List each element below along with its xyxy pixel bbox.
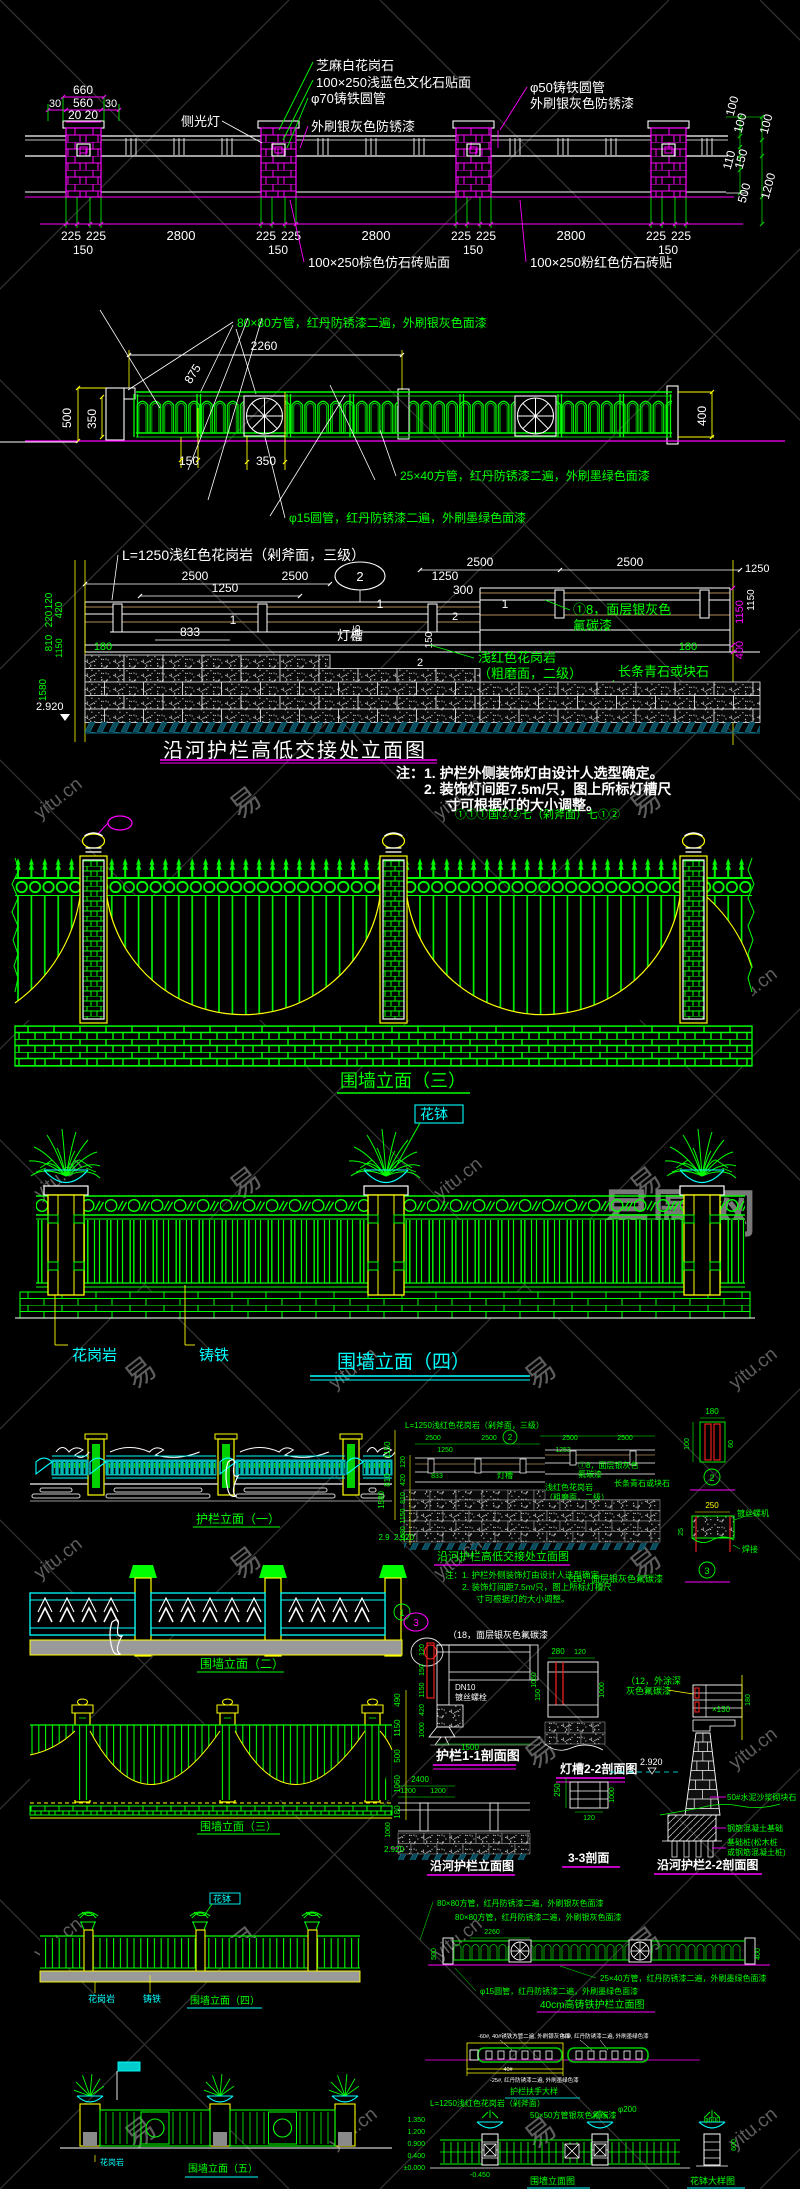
svg-text:围墙立面（三）: 围墙立面（三）: [340, 1071, 466, 1091]
svg-text:25×40方管，红丹防锈漆二遍，外刷墨绿色面漆: 25×40方管，红丹防锈漆二遍，外刷墨绿色面漆: [600, 1973, 766, 1983]
svg-text:-60#, 红丹防锈漆二遍, 外刷墨绿色漆: -60#, 红丹防锈漆二遍, 外刷墨绿色漆: [560, 2032, 649, 2040]
svg-text:φ200: φ200: [618, 2105, 637, 2114]
svg-text:（12，外涂深: （12，外涂深: [626, 1675, 681, 1686]
svg-text:150: 150: [73, 243, 93, 257]
svg-text:2500: 2500: [282, 569, 309, 583]
svg-text:（18，面层银灰色氟碳漆: （18，面层银灰色氟碳漆: [563, 1573, 663, 1584]
svg-text:500: 500: [60, 408, 74, 428]
svg-text:1060: 1060: [385, 1822, 392, 1838]
svg-text:225: 225: [61, 229, 81, 243]
svg-text:150: 150: [419, 1664, 426, 1676]
svg-text:225: 225: [671, 229, 691, 243]
svg-text:50×50方管银灰色氟碳漆: 50×50方管银灰色氟碳漆: [530, 2110, 616, 2120]
svg-text:810: 810: [383, 1473, 392, 1487]
svg-text:1.200: 1.200: [407, 2129, 425, 2136]
svg-text:花钵: 花钵: [213, 1893, 231, 1904]
svg-text:围墙立面（三）: 围墙立面（三）: [200, 1819, 277, 1833]
svg-text:1: 1: [377, 597, 384, 611]
svg-text:围墙立面（四）: 围墙立面（四）: [190, 1994, 260, 2007]
svg-text:180: 180: [393, 1805, 402, 1819]
svg-text:镀丝螺机: 镀丝螺机: [737, 1508, 769, 1518]
svg-text:①8，面层银灰色: ①8，面层银灰色: [573, 602, 671, 617]
svg-text:沿河护栏2-2剖面图: 沿河护栏2-2剖面图: [656, 1857, 758, 1872]
svg-text:2260: 2260: [251, 339, 278, 353]
svg-text:833: 833: [431, 1473, 443, 1480]
svg-text:40cm高铸铁护栏立面图: 40cm高铸铁护栏立面图: [540, 1998, 644, 2011]
svg-text:2: 2: [356, 569, 363, 584]
svg-text:L=1250浅红色花岗岩（剁斧面，三级）: L=1250浅红色花岗岩（剁斧面，三级）: [405, 1420, 544, 1430]
svg-text:120: 120: [583, 1815, 595, 1822]
svg-text:灰色氟碳漆: 灰色氟碳漆: [626, 1685, 671, 1696]
svg-text:护栏扶手大样: 护栏扶手大样: [510, 2086, 558, 2096]
svg-text:浅红色花岗岩: 浅红色花岗岩: [478, 650, 556, 665]
svg-text:660: 660: [73, 83, 93, 97]
svg-text:100×250粉红色仿石砖贴: 100×250粉红色仿石砖贴: [530, 255, 672, 270]
svg-text:500: 500: [431, 1948, 438, 1960]
svg-text:30: 30: [49, 98, 61, 110]
svg-text:灯槽: 灯槽: [497, 1470, 513, 1480]
svg-text:810: 810: [400, 1492, 407, 1504]
svg-text:250: 250: [553, 1783, 562, 1797]
svg-text:3: 3: [704, 1566, 709, 1576]
svg-text:护栏立面（一）: 护栏立面（一）: [196, 1511, 280, 1526]
svg-text:1150: 1150: [383, 1441, 392, 1459]
svg-text:2260: 2260: [484, 1929, 500, 1936]
svg-text:花岗岩: 花岗岩: [100, 2157, 124, 2167]
svg-text:2.920: 2.920: [394, 1533, 415, 1542]
svg-text:围墙立面（五）: 围墙立面（五）: [188, 2162, 258, 2175]
svg-text:40#: 40#: [503, 2067, 513, 2073]
svg-text:1580: 1580: [38, 678, 49, 701]
svg-text:花钵大样图: 花钵大样图: [690, 2175, 735, 2186]
svg-text:420: 420: [400, 1474, 407, 1486]
svg-text:花钵: 花钵: [420, 1106, 448, 1122]
svg-text:1250: 1250: [432, 569, 459, 583]
svg-text:沿河护栏高低交接处立面图: 沿河护栏高低交接处立面图: [163, 739, 427, 762]
svg-text:100×250棕色仿石砖贴面: 100×250棕色仿石砖贴面: [308, 255, 450, 270]
svg-text:420: 420: [419, 1704, 426, 1716]
svg-text:1150: 1150: [54, 638, 64, 657]
svg-text:φ15圆管，红丹防锈漆二遍，外刷墨绿色面漆: φ15圆管，红丹防锈漆二遍，外刷墨绿色面漆: [289, 510, 526, 525]
svg-text:寸可根据灯的大小调整。: 寸可根据灯的大小调整。: [476, 1594, 570, 1604]
svg-text:180: 180: [94, 641, 112, 653]
svg-text:350: 350: [85, 409, 99, 429]
svg-text:钢筋混凝土基础: 钢筋混凝土基础: [727, 1823, 783, 1833]
svg-text:280: 280: [551, 1647, 565, 1656]
svg-text:1000: 1000: [599, 1682, 606, 1698]
svg-text:侧光灯: 侧光灯: [181, 114, 220, 129]
svg-text:2500: 2500: [467, 555, 494, 569]
svg-text:外刷银灰色防锈漆: 外刷银灰色防锈漆: [311, 119, 415, 134]
svg-text:围墙立面（二）: 围墙立面（二）: [200, 1656, 284, 1671]
svg-text:浅红色花岗岩: 浅红色花岗岩: [545, 1482, 593, 1492]
svg-text:80×80方管，红丹防锈漆二遍，外刷银灰色面漆: 80×80方管，红丹防锈漆二遍，外刷银灰色面漆: [237, 315, 487, 330]
svg-text:（18，面层银灰色氟碳漆: （18，面层银灰色氟碳漆: [448, 1629, 548, 1640]
svg-text:2800: 2800: [557, 228, 586, 243]
svg-text:1000: 1000: [419, 1722, 426, 1738]
svg-text:100×250浅蓝色文化石贴面: 100×250浅蓝色文化石贴面: [316, 75, 471, 90]
svg-text:60: 60: [728, 1440, 735, 1448]
svg-text:灯槽2-2剖面图: 灯槽2-2剖面图: [560, 1761, 637, 1776]
svg-text:2800: 2800: [362, 228, 391, 243]
svg-text:50#水泥沙浆砌块石: 50#水泥沙浆砌块石: [727, 1792, 796, 1802]
svg-text:120: 120: [419, 1644, 426, 1656]
svg-text:350: 350: [256, 454, 276, 468]
svg-text:150: 150: [535, 1689, 542, 1701]
svg-text:外刷银灰色防锈漆: 外刷银灰色防锈漆: [530, 96, 634, 111]
svg-text:长条青石或块石: 长条青石或块石: [614, 1478, 670, 1488]
svg-text:×130: ×130: [712, 1705, 731, 1714]
svg-text:L=1250浅红色花岗岩（剁斧面，三级）: L=1250浅红色花岗岩（剁斧面，三级）: [122, 547, 365, 563]
svg-text:1580: 1580: [377, 1491, 386, 1509]
svg-text:2. 装饰灯间距7.5m/只，图上所标灯槽尺: 2. 装饰灯间距7.5m/只，图上所标灯槽尺: [424, 781, 671, 797]
svg-text:25×40方管，红丹防锈漆二遍，外刷墨绿色面漆: 25×40方管，红丹防锈漆二遍，外刷墨绿色面漆: [400, 468, 650, 483]
svg-text:1150: 1150: [400, 1508, 407, 1523]
svg-text:2500: 2500: [481, 1435, 497, 1442]
svg-text:焊接: 焊接: [742, 1544, 758, 1554]
svg-text:（粗磨面，二级）: （粗磨面，二级）: [478, 666, 582, 681]
svg-text:围墙立面（四）: 围墙立面（四）: [337, 1351, 470, 1373]
svg-text:护栏1-1剖面图: 护栏1-1剖面图: [436, 1748, 520, 1763]
svg-text:420: 420: [54, 601, 65, 618]
svg-text:3-3剖面: 3-3剖面: [568, 1850, 609, 1865]
svg-text:1250: 1250: [745, 563, 769, 575]
svg-text:0.400: 0.400: [407, 2153, 425, 2160]
svg-text:1: 1: [399, 1608, 404, 1618]
svg-text:80×80方管，红丹防锈漆二遍，外刷银灰色面漆: 80×80方管，红丹防锈漆二遍，外刷银灰色面漆: [437, 1898, 603, 1908]
svg-text:1: 1: [230, 613, 237, 627]
svg-text:2: 2: [417, 657, 423, 669]
svg-text:基础桩(松木桩: 基础桩(松木桩: [727, 1837, 778, 1847]
svg-text:或钢筋混凝土桩): 或钢筋混凝土桩): [727, 1847, 786, 1857]
svg-text:2.920: 2.920: [384, 1845, 405, 1854]
svg-text:1.350: 1.350: [407, 2117, 425, 2124]
svg-text:-60#, 40#锈铁方管二遍, 外刷银灰色漆: -60#, 40#锈铁方管二遍, 外刷银灰色漆: [478, 2032, 571, 2040]
svg-text:氟碳漆: 氟碳漆: [578, 1469, 602, 1479]
svg-text:φ15圆管，红丹防锈漆二遍，外刷墨绿色面漆: φ15圆管，红丹防锈漆二遍，外刷墨绿色面漆: [480, 1986, 638, 1996]
svg-text:1250: 1250: [437, 1447, 453, 1454]
svg-text:400: 400: [695, 406, 709, 426]
svg-text:2: 2: [709, 1473, 714, 1483]
svg-text:花岗岩: 花岗岩: [88, 1993, 115, 2004]
svg-text:DN10: DN10: [455, 1683, 476, 1692]
svg-text:100: 100: [684, 1438, 691, 1450]
svg-text:400: 400: [755, 1948, 762, 1960]
svg-text:1200: 1200: [430, 1788, 446, 1795]
svg-text:2.920: 2.920: [640, 1757, 663, 1767]
svg-text:833: 833: [180, 625, 200, 639]
svg-text:芝麻白花岗石: 芝麻白花岗石: [316, 58, 394, 73]
svg-text:500: 500: [393, 1749, 402, 1763]
svg-text:2: 2: [452, 611, 458, 623]
svg-text:150: 150: [268, 243, 288, 257]
svg-text:80×80方管，红丹防锈漆二遍，外刷银灰色面漆: 80×80方管，红丹防锈漆二遍，外刷银灰色面漆: [455, 1912, 621, 1922]
svg-text:300: 300: [453, 583, 473, 597]
svg-text:25: 25: [678, 1528, 685, 1536]
svg-text:氟碳漆: 氟碳漆: [573, 618, 612, 633]
svg-text:注：1. 护栏外侧装饰灯由设计人选型确定。: 注：1. 护栏外侧装饰灯由设计人选型确定。: [396, 765, 664, 781]
svg-text:2800: 2800: [167, 228, 196, 243]
svg-text:305: 305: [352, 624, 363, 641]
svg-text:1150: 1150: [734, 600, 746, 624]
svg-text:铸铁: 铸铁: [143, 1993, 161, 2004]
svg-text:1000: 1000: [609, 1787, 616, 1803]
svg-text:±0.000: ±0.000: [404, 2165, 425, 2172]
svg-text:150: 150: [463, 243, 483, 257]
svg-text:花岗岩: 花岗岩: [72, 1347, 117, 1364]
svg-text:600: 600: [731, 2139, 738, 2151]
svg-text:180: 180: [679, 641, 697, 653]
svg-text:①①①国②②七（剁斧面）七①②: ①①①国②②七（剁斧面）七①②: [455, 807, 620, 821]
svg-text:1150: 1150: [419, 1682, 426, 1697]
svg-text:1: 1: [502, 597, 509, 611]
svg-text:1060: 1060: [531, 1672, 538, 1688]
svg-text:2400: 2400: [411, 1775, 429, 1784]
svg-text:30: 30: [105, 98, 117, 110]
svg-text:225: 225: [476, 229, 496, 243]
svg-text:1250: 1250: [212, 581, 239, 595]
svg-text:225: 225: [86, 229, 106, 243]
svg-text:围墙立面图: 围墙立面图: [530, 2175, 575, 2186]
svg-text:180: 180: [745, 1694, 752, 1706]
svg-text:φ600: φ600: [704, 2117, 720, 2124]
svg-text:φ70铸铁圆管: φ70铸铁圆管: [311, 91, 386, 106]
svg-text:120: 120: [400, 1456, 407, 1468]
svg-text:180: 180: [705, 1407, 719, 1416]
svg-text:1253: 1253: [555, 1447, 571, 1454]
svg-text:①8，面层银灰色: ①8，面层银灰色: [578, 1460, 638, 1470]
svg-text:225: 225: [256, 229, 276, 243]
svg-text:2: 2: [508, 1433, 513, 1442]
svg-text:2500: 2500: [182, 569, 209, 583]
svg-text:490: 490: [393, 1693, 402, 1707]
svg-text:0.900: 0.900: [407, 2141, 425, 2148]
svg-text:φ50铸铁圆管: φ50铸铁圆管: [530, 80, 605, 95]
svg-text:镀丝螺栓: 镀丝螺栓: [455, 1692, 487, 1702]
svg-text:2.920: 2.920: [36, 701, 64, 713]
svg-text:3: 3: [413, 1618, 419, 1629]
svg-text:L=1250浅红色花岗岩（剁斧面）: L=1250浅红色花岗岩（剁斧面）: [430, 2098, 545, 2108]
svg-text:1150: 1150: [746, 589, 757, 611]
svg-text:-0.450: -0.450: [470, 2172, 490, 2179]
svg-text:2500: 2500: [617, 555, 644, 569]
svg-text:长条青石或块石: 长条青石或块石: [618, 664, 709, 679]
svg-text:225: 225: [646, 229, 666, 243]
svg-text:2500: 2500: [425, 1435, 441, 1442]
svg-text:400: 400: [734, 641, 746, 659]
svg-text:沿河护栏高低交接处立面图: 沿河护栏高低交接处立面图: [437, 1549, 569, 1563]
svg-text:225: 225: [451, 229, 471, 243]
svg-text:120: 120: [574, 1649, 586, 1656]
svg-text:2.9: 2.9: [378, 1533, 390, 1542]
svg-text:250: 250: [705, 1501, 719, 1510]
svg-text:1150: 1150: [393, 1719, 402, 1737]
svg-text:1200: 1200: [400, 1788, 416, 1795]
svg-text:沿河护栏立面图: 沿河护栏立面图: [429, 1858, 514, 1873]
svg-text:铸铁: 铸铁: [199, 1347, 229, 1364]
svg-text:-25#, 红丹防锈漆二遍, 外刷墨绿色漆: -25#, 红丹防锈漆二遍, 外刷墨绿色漆: [490, 2076, 579, 2084]
